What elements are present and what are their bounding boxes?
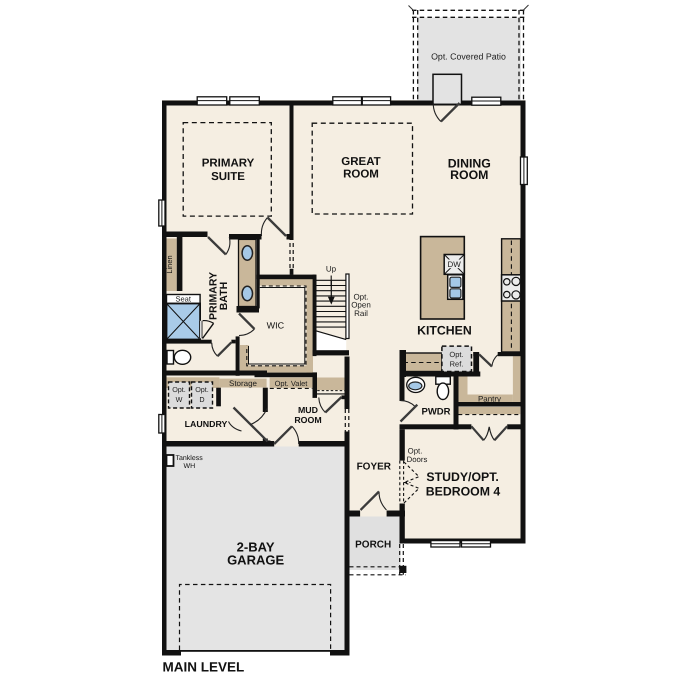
- svg-text:Pantry: Pantry: [478, 394, 501, 403]
- svg-text:PRIMARY: PRIMARY: [202, 158, 255, 170]
- svg-text:GARAGE: GARAGE: [227, 553, 284, 568]
- svg-text:DW: DW: [448, 260, 462, 269]
- svg-text:ROOM: ROOM: [343, 168, 379, 180]
- svg-text:Opt.: Opt.: [195, 385, 209, 394]
- svg-text:ROOM: ROOM: [450, 168, 488, 182]
- svg-text:Opt.: Opt.: [449, 350, 463, 359]
- svg-text:W: W: [176, 395, 183, 404]
- svg-text:BATH: BATH: [218, 282, 230, 310]
- svg-text:Ref.: Ref.: [450, 360, 464, 369]
- svg-text:Doors: Doors: [407, 455, 428, 464]
- svg-text:MAIN LEVEL: MAIN LEVEL: [163, 660, 245, 675]
- svg-text:WH: WH: [184, 463, 196, 470]
- svg-text:PWDR: PWDR: [421, 406, 450, 417]
- svg-text:ROOM: ROOM: [294, 415, 321, 425]
- svg-text:LAUNDRY: LAUNDRY: [185, 419, 228, 429]
- svg-text:Tankless: Tankless: [176, 454, 204, 462]
- svg-text:BEDROOM 4: BEDROOM 4: [426, 485, 501, 499]
- svg-text:FOYER: FOYER: [357, 461, 392, 472]
- svg-text:PORCH: PORCH: [355, 539, 391, 550]
- svg-text:Up: Up: [326, 265, 337, 274]
- svg-text:Seat: Seat: [175, 295, 191, 304]
- svg-text:D: D: [199, 395, 204, 404]
- svg-text:STUDY/OPT.: STUDY/OPT.: [426, 470, 498, 484]
- svg-text:GREAT: GREAT: [341, 156, 380, 168]
- svg-text:WIC: WIC: [267, 320, 285, 330]
- svg-text:Opt. Covered Patio: Opt. Covered Patio: [431, 52, 506, 62]
- svg-text:Rail: Rail: [354, 309, 368, 318]
- svg-text:SUITE: SUITE: [211, 171, 245, 183]
- svg-text:KITCHEN: KITCHEN: [417, 324, 472, 338]
- svg-text:MUD: MUD: [298, 405, 318, 415]
- svg-text:Opt.: Opt.: [172, 385, 186, 394]
- svg-text:Opt. Valet: Opt. Valet: [275, 379, 309, 388]
- svg-text:Storage: Storage: [229, 379, 258, 388]
